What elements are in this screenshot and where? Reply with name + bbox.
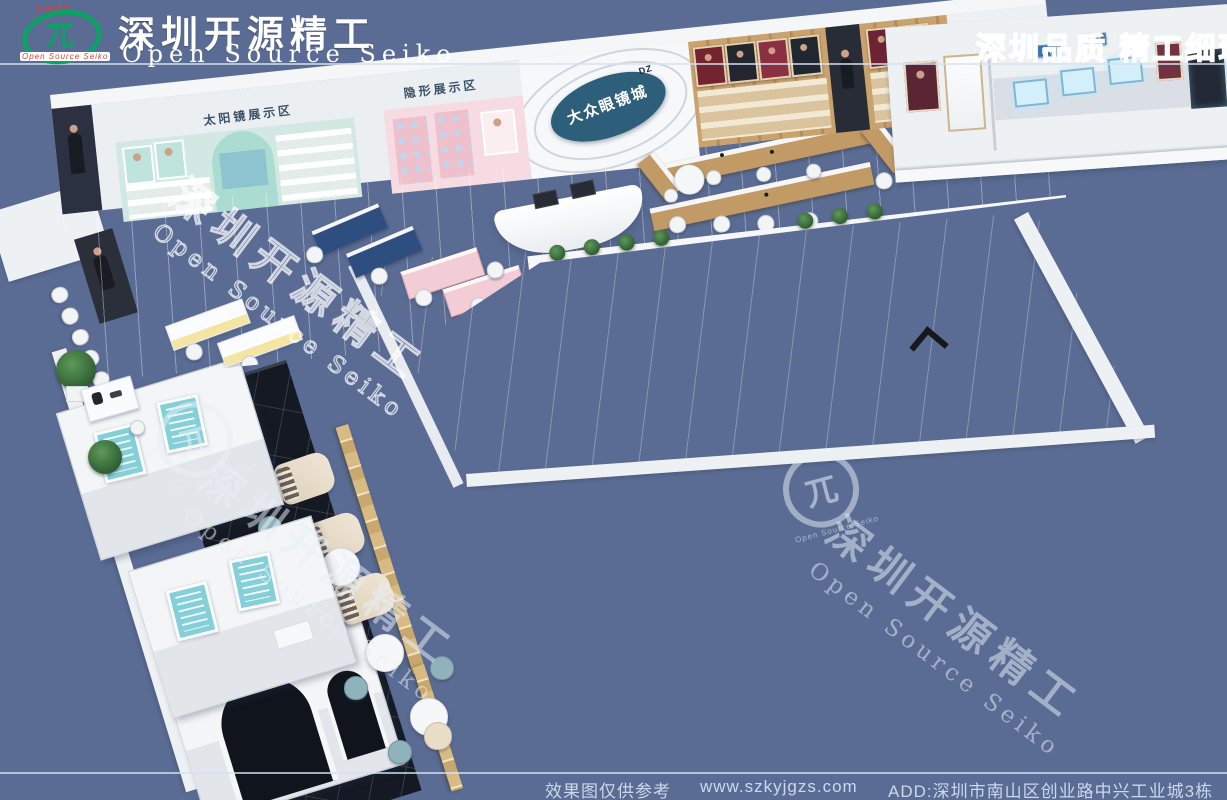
person-head: [704, 54, 712, 62]
display-chair: [712, 215, 731, 234]
display-chair: [706, 169, 722, 185]
person-head: [768, 47, 776, 55]
display-chair: [470, 296, 489, 315]
contact-lens-cabinet: [392, 116, 433, 185]
display-chair: [370, 267, 389, 286]
person-head: [493, 118, 502, 127]
footer-address: ADD:深圳市南山区创业路中兴工业城3栋: [888, 777, 1213, 800]
person-head: [69, 124, 78, 133]
emblem-glyph: 兀: [46, 14, 74, 54]
eye-chart-poster: [165, 581, 218, 642]
footer-disclaimer: 效果图仅供参考: [545, 777, 671, 800]
lightbox-sign: [1013, 78, 1050, 107]
person-head: [916, 70, 925, 79]
display-chair: [668, 215, 687, 234]
waiting-chair: [49, 284, 71, 306]
display-column: [825, 24, 870, 133]
person-head: [133, 153, 142, 162]
exam-desk: [272, 620, 314, 650]
quality-slogan: 深圳品质 精工细琢: [976, 24, 1227, 68]
watermark-logo-glyph: 兀: [174, 413, 217, 466]
contact-lens-cabinet: [434, 109, 475, 178]
footer-website: www.szkyjgzs.com: [700, 777, 858, 797]
stool: [130, 420, 145, 435]
lounge-chair: [344, 676, 368, 700]
model-poster: [154, 139, 188, 180]
model-poster: [480, 109, 518, 156]
optometry-device: [109, 390, 122, 399]
footer-divider: [0, 772, 1227, 774]
person-head: [841, 49, 850, 58]
person-figure: [67, 133, 85, 174]
lounge-chair: [388, 740, 412, 764]
model-poster: [122, 145, 156, 186]
display-chair: [414, 288, 433, 307]
brand-subtitle: Open Source Seiko: [122, 40, 457, 68]
model-poster: [788, 34, 823, 77]
arch-picture: [219, 149, 269, 190]
eyewear-shelves: [697, 78, 832, 141]
person-head: [736, 50, 744, 58]
model-poster: [903, 60, 940, 112]
display-chair: [663, 188, 678, 203]
display-chair: [755, 166, 771, 182]
watermark-text: 深圳开源精工 Open Source Seiko: [797, 500, 1104, 763]
display-chair: [185, 342, 204, 361]
lounge-chair: [424, 722, 452, 750]
zone-sign: 隐形展示区: [403, 76, 480, 102]
model-poster: [693, 44, 728, 87]
render-poster: 太阳镜展示区 隐形展示区 大众眼镜城 DZ: [0, 0, 1227, 800]
person-head: [164, 148, 173, 157]
optometry-device: [91, 391, 104, 405]
person-head: [800, 44, 808, 52]
lightbox-sign: [1060, 67, 1097, 96]
display-chair: [875, 171, 894, 190]
watermark-logo-glyph: 兀: [800, 463, 843, 516]
potted-plant: [88, 440, 122, 474]
person-head: [877, 35, 885, 43]
model-poster: [756, 38, 791, 81]
brand-emblem: 开源精工 兀 Open Source Seiko: [14, 4, 106, 62]
